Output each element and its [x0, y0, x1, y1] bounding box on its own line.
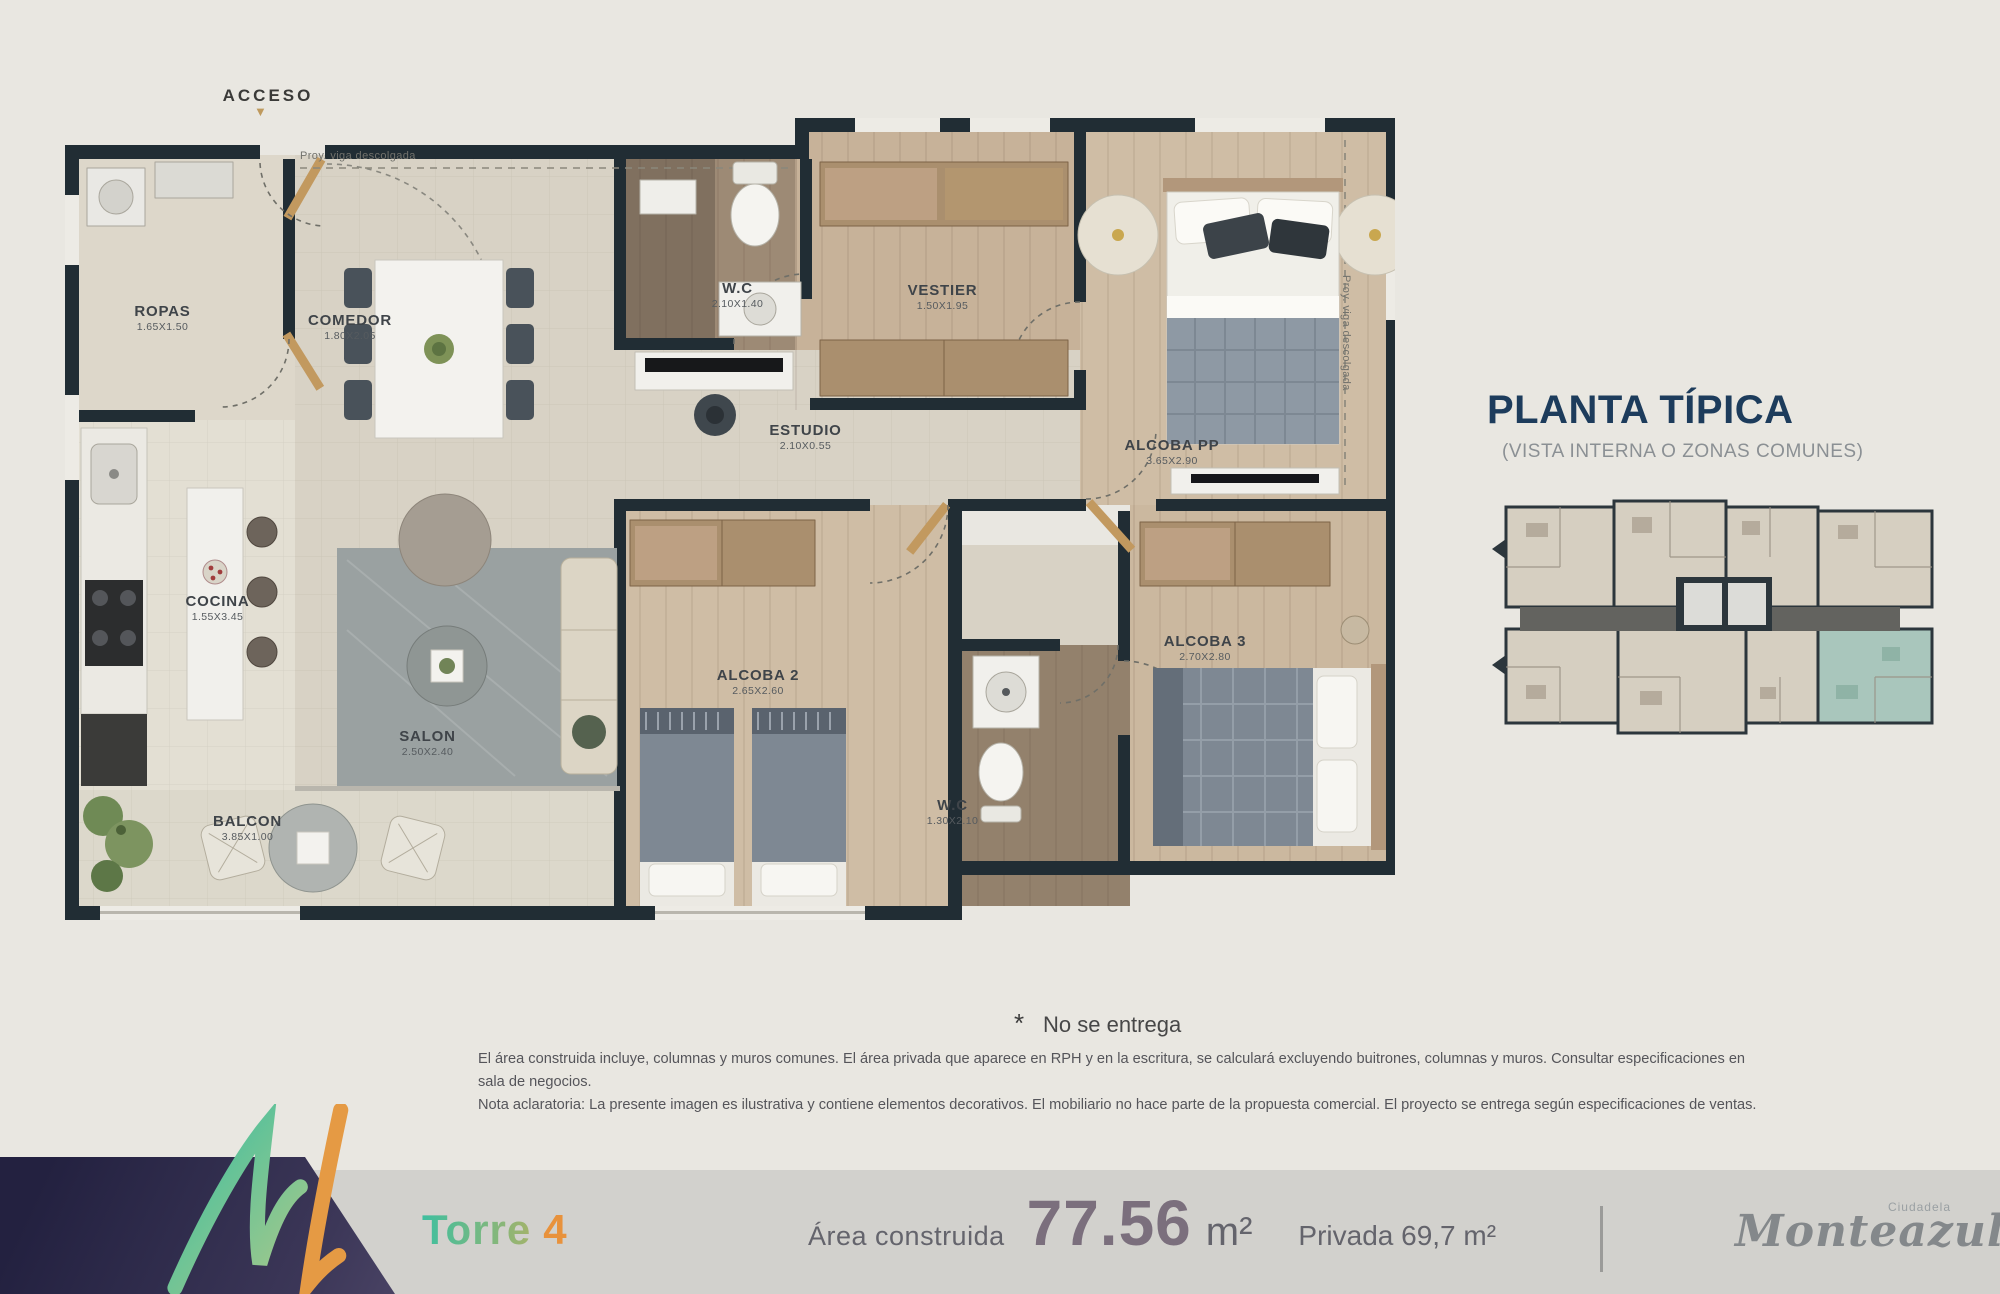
footnote-asterisk: * [1014, 1008, 1024, 1039]
tower-title: Torre4 [422, 1206, 568, 1254]
brand-name: Monteazul [1735, 1206, 1965, 1257]
area-built-value: 77.56 [1027, 1186, 1192, 1260]
access-arrow-icon: ▼ [254, 104, 267, 119]
floorplan-svg [55, 100, 1395, 940]
brochure-page: ACCESO ▼ Proy. viga descolgada Proy. vig… [0, 0, 2000, 1294]
access-label: ACCESO [198, 86, 338, 106]
area-info: Área construida 77.56 m² Privada 69,7 m² [808, 1186, 1496, 1260]
beam-note-top: Proy. viga descolgada [300, 150, 416, 162]
footer-divider [1600, 1206, 1603, 1272]
beam-note-right: Proy. viga descolgada [1340, 275, 1352, 391]
area-private: Privada 69,7 m² [1298, 1220, 1496, 1252]
side-panel-subtitle: (VISTA INTERNA O ZONAS COMUNES) [1502, 441, 1863, 463]
monteazul-m-logo-icon [152, 1104, 392, 1294]
disclaimer-text: El área construida incluye, columnas y m… [478, 1048, 1768, 1117]
disclaimer-line-2: Nota aclaratoria: La presente imagen es … [478, 1094, 1768, 1117]
side-panel-title: PLANTA TÍPICA [1487, 388, 1793, 433]
disclaimer-line-1: El área construida incluye, columnas y m… [478, 1048, 1768, 1094]
tower-number: 4 [543, 1206, 567, 1253]
typical-floorplate-thumbnail [1480, 487, 1940, 737]
footnote-no-delivery: No se entrega [1043, 1012, 1181, 1038]
area-built-unit: m² [1206, 1210, 1253, 1255]
area-built-label: Área construida [808, 1221, 1005, 1252]
brand-logo: Ciudadela Monteazul [1735, 1200, 1965, 1257]
tower-label: Torre [422, 1206, 531, 1253]
